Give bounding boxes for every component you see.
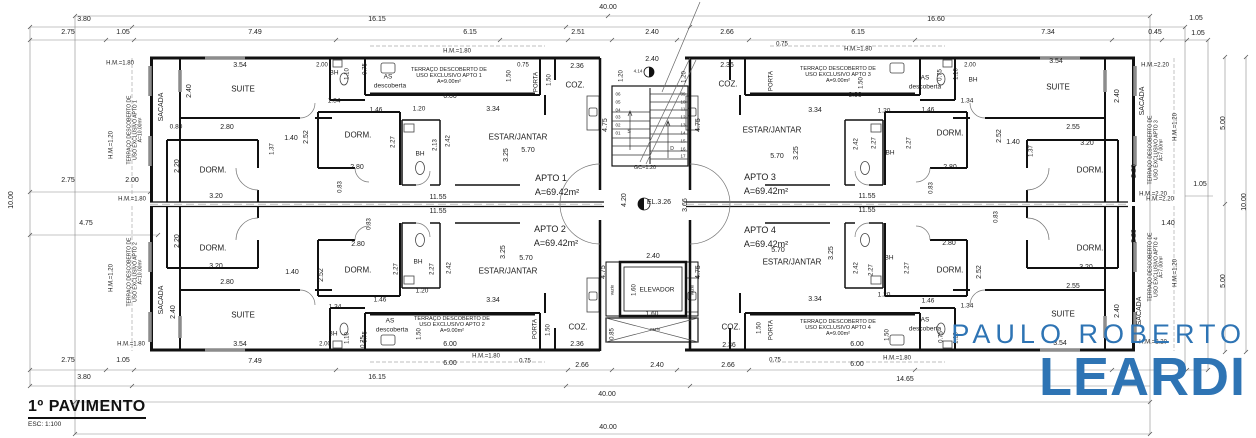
dim-label: 2.75: [61, 177, 75, 185]
plan-label: TERRAÇO DESCOBERTO DE USO EXCLUSIVO APTO…: [411, 67, 487, 85]
dim-label: 1.37: [1029, 145, 1036, 157]
dim-label: 0.80: [170, 123, 183, 130]
dim-label: 13: [680, 122, 685, 127]
dim-label: 1.20: [619, 70, 626, 82]
plan-label: AS: [386, 317, 395, 324]
dim-label: 1.20: [878, 107, 891, 114]
dim-label: 2.00: [319, 342, 331, 349]
dim-label: 2.00: [125, 177, 139, 185]
plan-label: COZ.: [718, 81, 737, 90]
dim-label: 16.15: [368, 16, 386, 24]
dim-label: 1.40: [1006, 139, 1020, 147]
dim-label: 2.40: [646, 253, 660, 261]
dim-label: 4.75: [600, 265, 608, 279]
dim-label: 6.00: [443, 341, 457, 349]
dim-label: 2.40: [1114, 89, 1122, 103]
plan-label: SUITE: [231, 86, 255, 95]
plan-label: H.M.=1.80: [844, 47, 872, 54]
dim-label: 3.54: [233, 341, 247, 349]
dim-label: 2.52: [996, 129, 1004, 143]
dim-label: 2.27: [907, 137, 914, 149]
dim-label: 1.10: [954, 68, 961, 80]
dim-label: 2.80: [943, 164, 957, 172]
dim-label: 3.20: [209, 263, 223, 271]
plan-label: SUITE: [231, 312, 255, 321]
plan-label: PORTA: [533, 319, 540, 339]
plan-label: H.M.=1.80: [472, 354, 500, 361]
title-block: 1º PAVIMENTO ESC: 1:100: [28, 398, 146, 428]
plan-label: H.M.=1.20: [109, 131, 116, 159]
dim-label: 2.40: [645, 29, 659, 37]
dim-label: 3.80: [77, 374, 91, 382]
dim-label: 2.40: [170, 305, 178, 319]
plan-label: DORM.: [345, 132, 372, 141]
dim-label: 2.80: [350, 164, 364, 172]
dim-label: 4.20: [621, 193, 629, 207]
dim-label: 16.15: [368, 374, 386, 382]
dim-label: 1.46: [922, 297, 935, 304]
plan-label: DORM.: [200, 245, 227, 254]
dim-label: 11: [681, 106, 686, 111]
dim-label: 2.42: [447, 262, 454, 274]
plan-label: A=69.42m²: [744, 186, 788, 196]
plan-label: AS: [384, 73, 393, 80]
plan-label: SACADA: [158, 93, 166, 122]
dim-label: 6.00: [848, 92, 862, 100]
dim-label: 3.54: [1049, 58, 1063, 66]
dim-label: 1.37: [270, 143, 277, 155]
dim-label: 2.80: [351, 241, 365, 249]
dim-label: 2.66: [575, 362, 589, 370]
plan-label: D: [670, 147, 674, 153]
plan-label: H.M.=1.20: [109, 264, 116, 292]
dim-label: 2.13: [433, 139, 440, 151]
plan-label: BH: [415, 150, 424, 157]
plan-label: PORTA: [769, 320, 776, 340]
plan-label: PORTA: [534, 72, 541, 92]
plan-label: vazio: [609, 285, 614, 296]
dim-label: 2.40: [186, 84, 194, 98]
dim-label: 10: [680, 99, 685, 104]
dim-label: 3.34: [486, 297, 500, 305]
plan-label: TERRAÇO DESCOBERTO DE USO EXCLUSIVO APTO…: [1149, 233, 1166, 302]
dim-label: 2.66: [720, 29, 734, 37]
plan-label: A=69.42m²: [535, 187, 579, 197]
plan-label: DORM.: [937, 267, 964, 276]
brand-logo: PAULO ROBERTO LEARDI: [951, 321, 1246, 404]
dim-label: 1.10: [345, 68, 352, 80]
plan-label: SACADA: [1139, 87, 1147, 116]
dim-label: 2.52: [303, 130, 311, 144]
dim-label: 1.20: [878, 291, 891, 298]
dim-label: 09: [680, 91, 685, 96]
dim-label: 2.52: [318, 268, 326, 282]
dim-label: 1.05: [1193, 181, 1207, 189]
dim-label: 6.15: [463, 29, 477, 37]
dim-label: 14.65: [896, 376, 914, 384]
dim-label: 3.80: [77, 16, 91, 24]
dim-label: 0.75: [517, 63, 529, 70]
dim-label: 1.50: [859, 77, 866, 89]
dim-label: 1.46: [370, 106, 383, 113]
dim-label: 1.05: [1191, 30, 1205, 38]
dim-label: 1.50: [885, 329, 892, 341]
logo-line2: LEARDI: [951, 350, 1246, 404]
dim-label: 5.70: [519, 255, 533, 263]
logo-line1: PAULO ROBERTO: [951, 321, 1246, 348]
dim-label: 6.00: [443, 360, 457, 368]
dim-label: 2.42: [446, 135, 453, 147]
plan-label: BH: [328, 330, 337, 337]
dim-label: 2.80: [942, 240, 956, 248]
plan-label: descoberta: [376, 326, 408, 333]
dim-label: 6.00: [850, 361, 864, 369]
dim-label: 2.66: [721, 362, 735, 370]
dim-label: 16.60: [927, 16, 945, 24]
plan-label: AS: [921, 316, 930, 323]
dim-label: 1.60: [646, 310, 659, 317]
dim-label: 1.50: [417, 328, 424, 340]
dim-label: 2.27: [430, 263, 437, 275]
dim-label: 0.75: [938, 69, 945, 81]
dim-label: 2.80: [220, 124, 234, 132]
plan-label: ELEVADOR: [640, 286, 675, 293]
dim-label: 05: [615, 99, 620, 104]
dim-label: 11.55: [859, 193, 876, 201]
plan-label: DORM.: [937, 130, 964, 139]
dim-label: 2.20: [174, 159, 182, 173]
plan-label: BH: [413, 258, 422, 265]
dim-label: 3.34: [808, 107, 822, 115]
dim-label: 2.00: [964, 63, 976, 70]
dim-label: 3.66: [682, 198, 690, 212]
dim-label: 2.20: [1131, 229, 1139, 243]
dim-label: 11.55: [430, 208, 447, 216]
dim-label: 10.00: [8, 191, 16, 209]
dim-label: 1.40: [284, 135, 298, 143]
plan-label: H.M.=1.20: [1173, 259, 1180, 287]
dim-label: 1.50: [757, 322, 764, 334]
dim-label: 1.10: [345, 332, 352, 344]
dim-label: 06: [615, 91, 620, 96]
dim-label: 11.55: [430, 194, 447, 202]
plan-label: BH: [885, 149, 894, 156]
dim-label: 1.46: [922, 106, 935, 113]
dim-label: 04: [615, 107, 620, 112]
dim-label: 1.50: [546, 324, 553, 336]
dim-label: 1.34: [328, 97, 341, 104]
dim-label: 2.40: [650, 362, 664, 370]
plan-label: ESTAR/JANTAR: [743, 127, 802, 136]
dim-label: 1.50: [547, 74, 554, 86]
dim-label: 0.75: [363, 331, 370, 343]
dim-label: 2.42: [854, 138, 861, 150]
dim-label: 2.36: [722, 342, 736, 350]
plan-label: A=69.42m²: [534, 238, 578, 248]
dim-label: 2.51: [571, 29, 585, 37]
plan-label: S: [627, 130, 630, 136]
dim-label: 7.49: [248, 29, 262, 37]
dim-label: 40.00: [599, 424, 617, 432]
dim-label: 5.70: [770, 153, 784, 161]
plan-label: COZ.: [568, 324, 587, 333]
dim-label: 2.75: [61, 357, 75, 365]
dim-label: 14: [680, 130, 685, 135]
dim-label: 2.40: [645, 56, 659, 64]
dim-label: 2.40: [1114, 304, 1122, 318]
plan-label: ESTAR/JANTAR: [489, 134, 548, 143]
plan-label: H.M.=1.80: [106, 61, 134, 68]
dim-label: 11.55: [859, 207, 876, 215]
plan-label: TERRAÇO DESCOBERTO DE USO EXCLUSIVO APTO…: [1149, 116, 1166, 185]
dim-label: 17: [680, 153, 685, 158]
dim-label: 3.25: [793, 146, 801, 160]
dim-label: 6.00: [443, 93, 457, 101]
dim-label: 2.55: [1066, 124, 1080, 132]
dim-label: 2.27: [905, 262, 912, 274]
dim-label: 2.36: [570, 63, 584, 71]
dim-label: 2.55: [1066, 283, 1080, 291]
plan-label: SUITE: [1046, 84, 1070, 93]
dim-label: 15: [680, 138, 685, 143]
dim-label: 1.20: [682, 71, 689, 83]
dim-label: 2.20: [174, 234, 182, 248]
dim-label: 2.36: [720, 62, 734, 70]
plan-label: H.M.=1.20: [1173, 113, 1180, 141]
plan-label: COZ.: [565, 82, 584, 91]
dim-label: 3.25: [503, 148, 511, 162]
dim-label: 0.45: [1148, 29, 1162, 37]
dim-label: 4.75: [602, 118, 610, 132]
dim-label: 16: [680, 146, 685, 151]
dim-label: 4.75: [695, 118, 703, 132]
dim-label: 2.80: [220, 279, 234, 287]
plan-label: TERRAÇO DESCOBERTO DE USO EXCLUSIVO APTO…: [414, 316, 490, 334]
dim-label: 3.20: [209, 193, 223, 201]
dim-label: 6.15: [851, 29, 865, 37]
dim-label: 2.42: [854, 262, 861, 274]
plan-label: vazio: [689, 285, 694, 296]
dim-label: 1.34: [961, 302, 974, 309]
dim-label: 3.25: [828, 246, 836, 260]
plan-label: A=69.42m²: [744, 239, 788, 249]
plan-label: ESTAR/JANTAR: [763, 259, 822, 268]
plan-label: APTO 2: [534, 224, 566, 234]
dim-label: 0.83: [994, 211, 1001, 223]
dim-label: 02: [615, 122, 620, 127]
plan-label: GC=1.20: [634, 165, 656, 171]
plan-label: EL.3.26: [647, 199, 671, 207]
plan-label: ESTAR/JANTAR: [479, 268, 538, 277]
dim-label: 2.27: [391, 136, 398, 148]
plan-label: BH: [329, 69, 338, 76]
dim-label: 0.83: [929, 182, 936, 194]
dim-label: 12: [680, 114, 685, 119]
dim-label: 1.40: [285, 269, 299, 277]
sheet-title: 1º PAVIMENTO: [28, 398, 146, 419]
dim-label: 5.00: [1220, 116, 1228, 130]
plan-label: COZ.: [721, 324, 740, 333]
plan-label: PORTA: [769, 71, 776, 91]
dim-label: 4.14: [634, 68, 643, 73]
plan-label: TERRAÇO DESCOBERTO DE USO EXCLUSIVO APTO…: [128, 96, 145, 165]
plan-label: TERRAÇO DESCOBERTO DE USO EXCLUSIVO APTO…: [800, 319, 876, 337]
plan-label: H.M.=2.20: [1141, 63, 1169, 70]
plan-label: H.M.=1.80: [117, 342, 145, 349]
plan-label: APTO 4: [744, 225, 776, 235]
plan-label: H.M.=1.80: [883, 356, 911, 363]
dim-label: 3.34: [808, 296, 822, 304]
plan-label: DORM.: [200, 167, 227, 176]
dim-label: 0.75: [363, 63, 370, 75]
plan-label: vazio: [650, 326, 661, 331]
plan-label: H.M.=1.80: [118, 197, 146, 204]
dim-label: 40.00: [598, 391, 616, 399]
dim-label: 4.75: [695, 265, 703, 279]
dim-label: 6.00: [850, 341, 864, 349]
dim-label: 1.46: [374, 296, 387, 303]
dim-label: 3.25: [500, 245, 508, 259]
dim-label: 1.05: [1189, 15, 1203, 23]
dim-label: 2.27: [869, 264, 876, 276]
dim-label: 0.75: [769, 358, 781, 365]
dim-label: 1.20: [416, 287, 429, 294]
dim-label: 3.34: [486, 106, 500, 114]
plan-label: BH: [968, 76, 977, 83]
dim-label: 0.85: [610, 328, 617, 340]
dim-label: 1.60: [632, 284, 639, 296]
dim-label: 10.00: [1241, 193, 1249, 211]
dim-label: 0.83: [338, 181, 345, 193]
plan-label: APTO 1: [535, 173, 567, 183]
plan-label: APTO 3: [744, 172, 776, 182]
dim-label: 2.27: [394, 263, 401, 275]
dim-label: 1.20: [413, 105, 426, 112]
dim-label: 5.70: [521, 147, 535, 155]
plan-label: TERRAÇO DESCOBERTO DE USO EXCLUSIVO APTO…: [128, 238, 145, 307]
plan-label: H.M.=2.20: [1139, 192, 1167, 199]
dim-label: 1.34: [961, 97, 974, 104]
dim-label: 0.75: [939, 331, 946, 343]
dim-label: 2.00: [316, 63, 328, 70]
dim-label: 40.00: [599, 4, 617, 12]
plan-label: BH: [884, 254, 893, 261]
dim-label: 01: [615, 130, 620, 135]
sheet-scale: ESC: 1:100: [28, 421, 146, 428]
plan-label: H.M.=1.80: [443, 49, 471, 56]
dim-label: 2.20: [1131, 164, 1139, 178]
dim-label: 7.34: [1041, 29, 1055, 37]
dim-label: 2.52: [976, 265, 984, 279]
floor-plan-sheet: 40.003.8016.1516.601.052.751.057.496.152…: [0, 0, 1256, 438]
plan-label: DORM.: [1077, 245, 1104, 254]
dim-label: 7.49: [248, 358, 262, 366]
plan-label: descoberta: [374, 82, 406, 89]
plan-label: AS: [921, 74, 930, 81]
dim-label: 2.36: [570, 341, 584, 349]
dim-label: 1.50: [507, 70, 514, 82]
dim-label: 3.54: [233, 62, 247, 70]
dim-label: 1.05: [116, 29, 130, 37]
dim-label: 1.05: [116, 357, 130, 365]
plan-label: SACADA: [158, 286, 166, 315]
plan-label: DORM.: [345, 267, 372, 276]
plan-label: descoberta: [909, 83, 941, 90]
dim-label: 3.20: [1080, 140, 1094, 148]
dim-label: 0.75: [519, 359, 531, 366]
dim-label: 0.75: [776, 42, 788, 49]
dim-label: 0.83: [367, 218, 374, 230]
plan-label: DORM.: [1077, 167, 1104, 176]
dim-label: 2.27: [872, 137, 879, 149]
dim-label: 1.40: [1161, 220, 1175, 228]
dim-label: 1.34: [329, 303, 342, 310]
dim-label: 2.75: [61, 29, 75, 37]
dim-label: 5.00: [1220, 274, 1228, 288]
dim-label: 03: [615, 114, 620, 119]
dim-label: 4.75: [79, 220, 93, 228]
dim-label: 3.20: [1079, 264, 1093, 272]
plan-label: descoberta: [909, 325, 941, 332]
